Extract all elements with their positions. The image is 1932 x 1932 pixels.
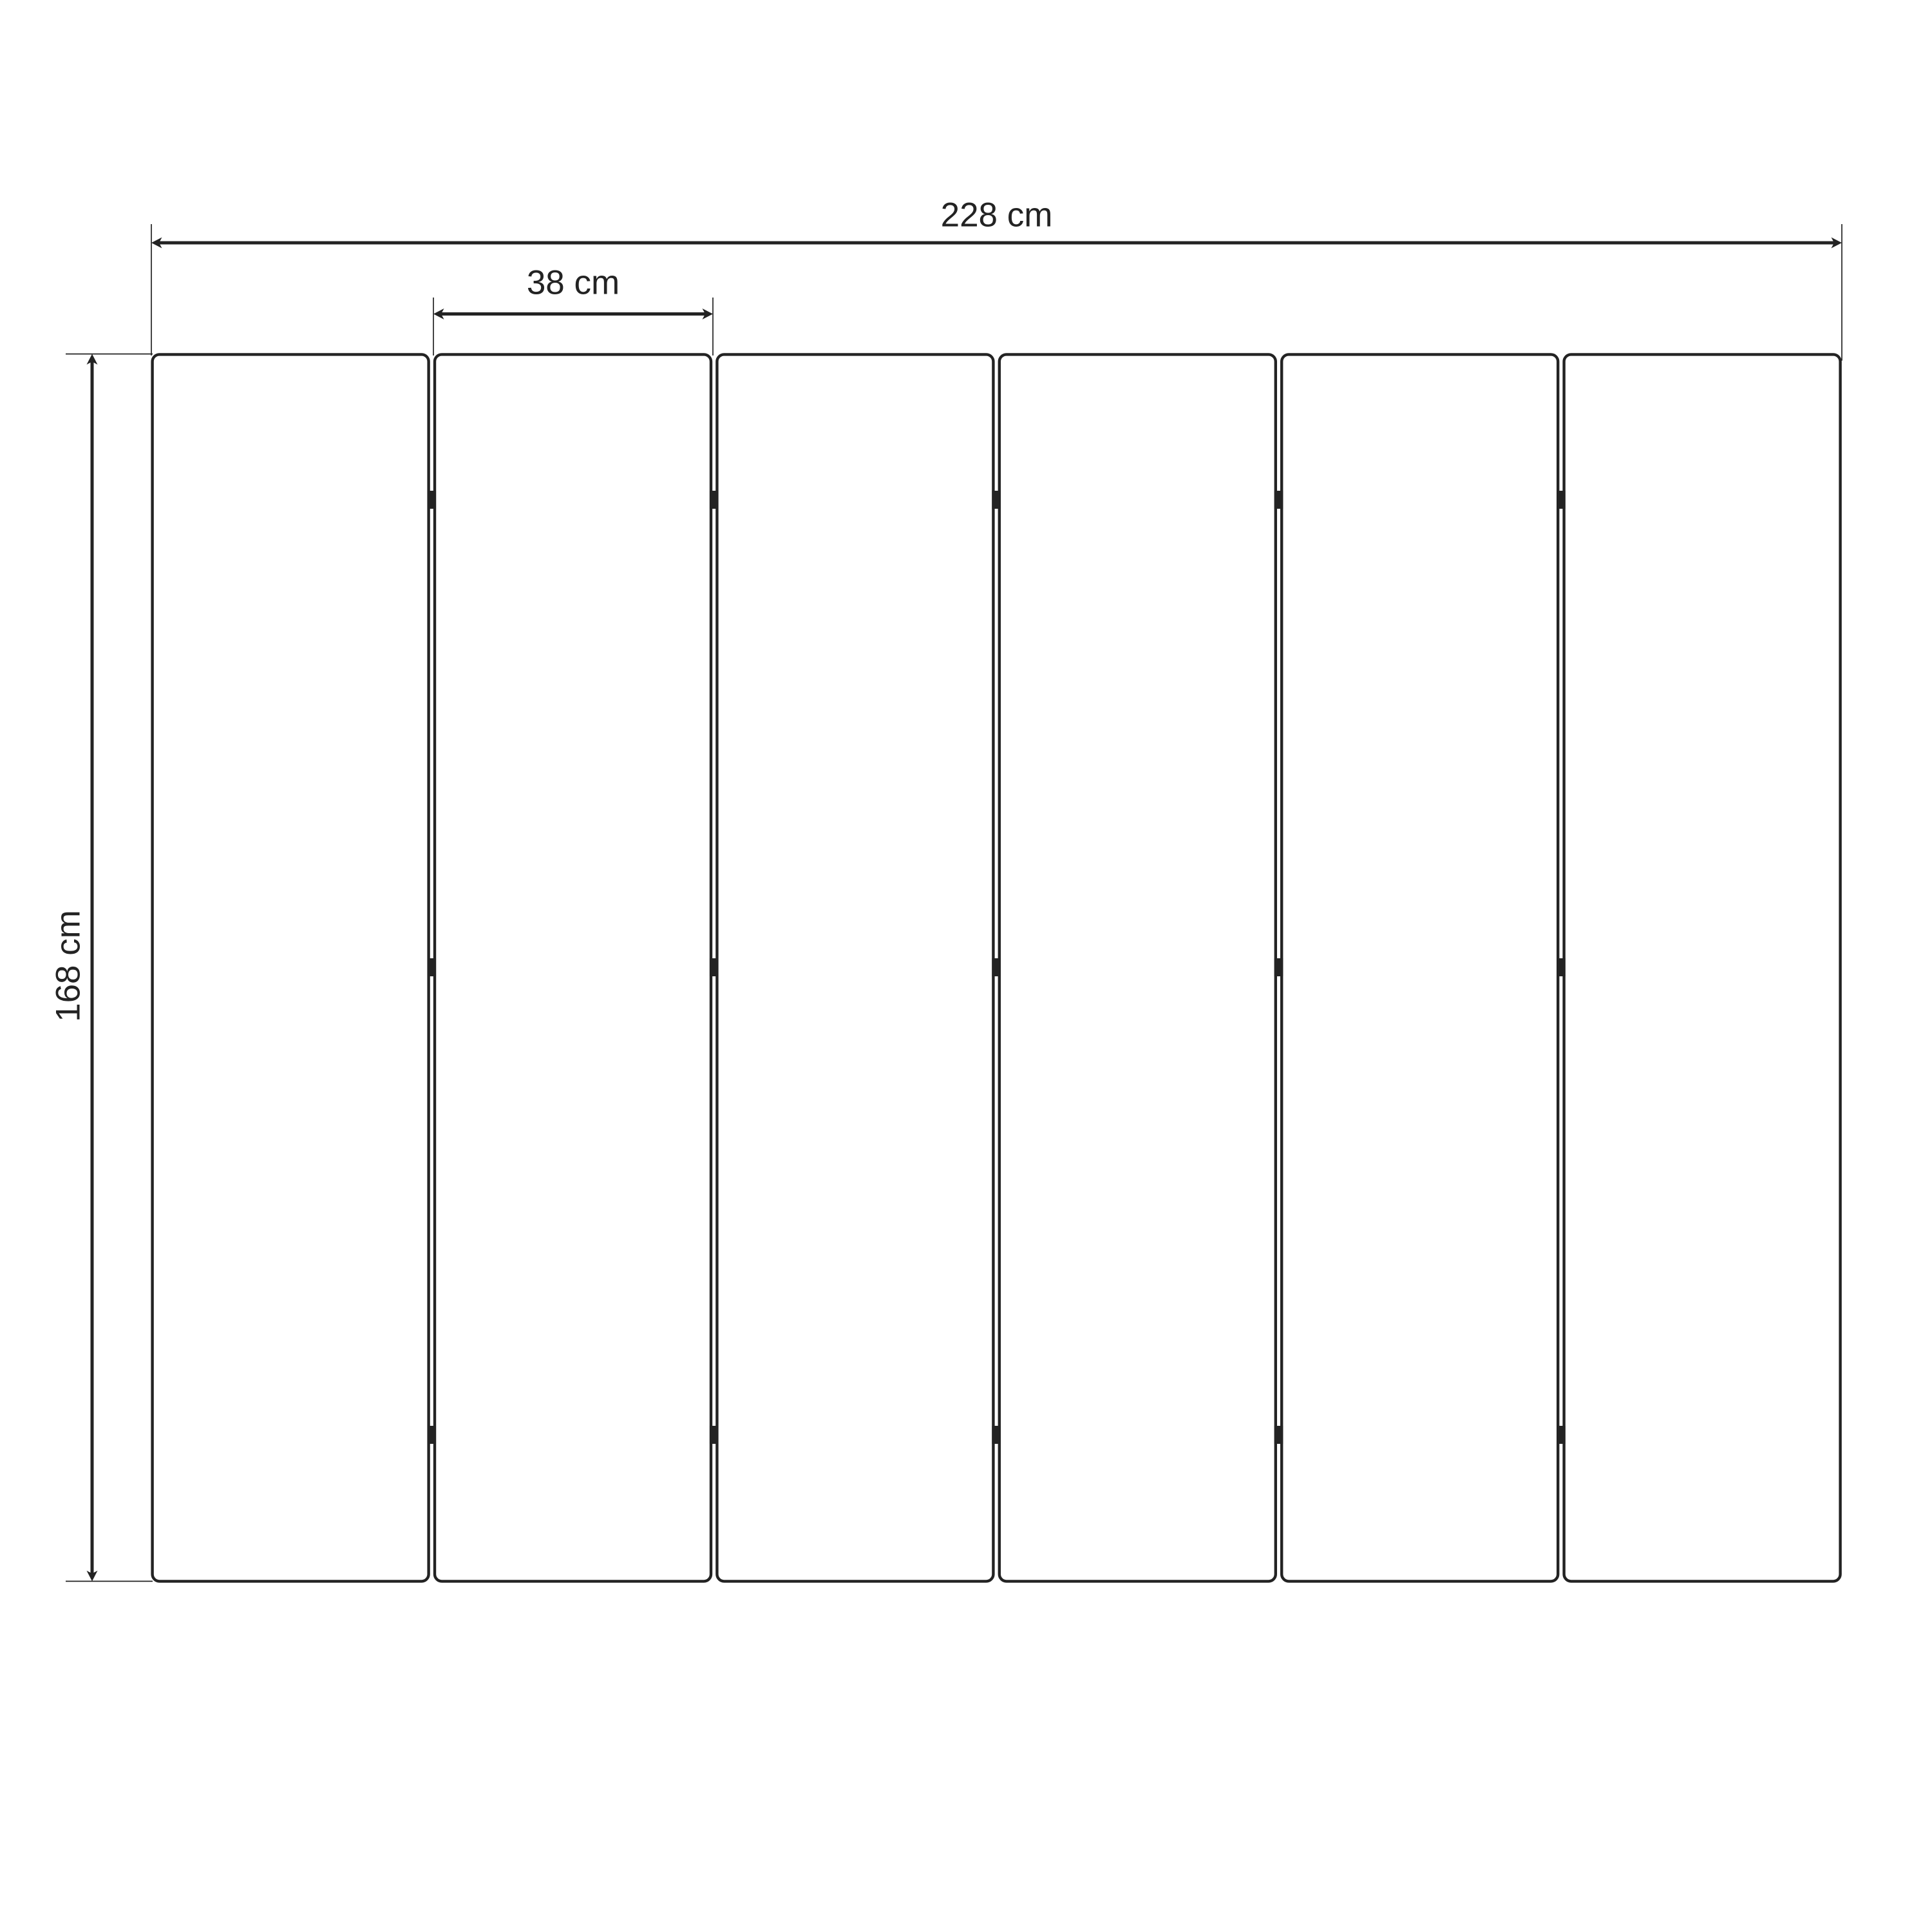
svg-text:38 cm: 38 cm xyxy=(527,264,620,302)
svg-text:168 cm: 168 cm xyxy=(50,910,88,1022)
svg-text:228 cm: 228 cm xyxy=(941,196,1053,234)
